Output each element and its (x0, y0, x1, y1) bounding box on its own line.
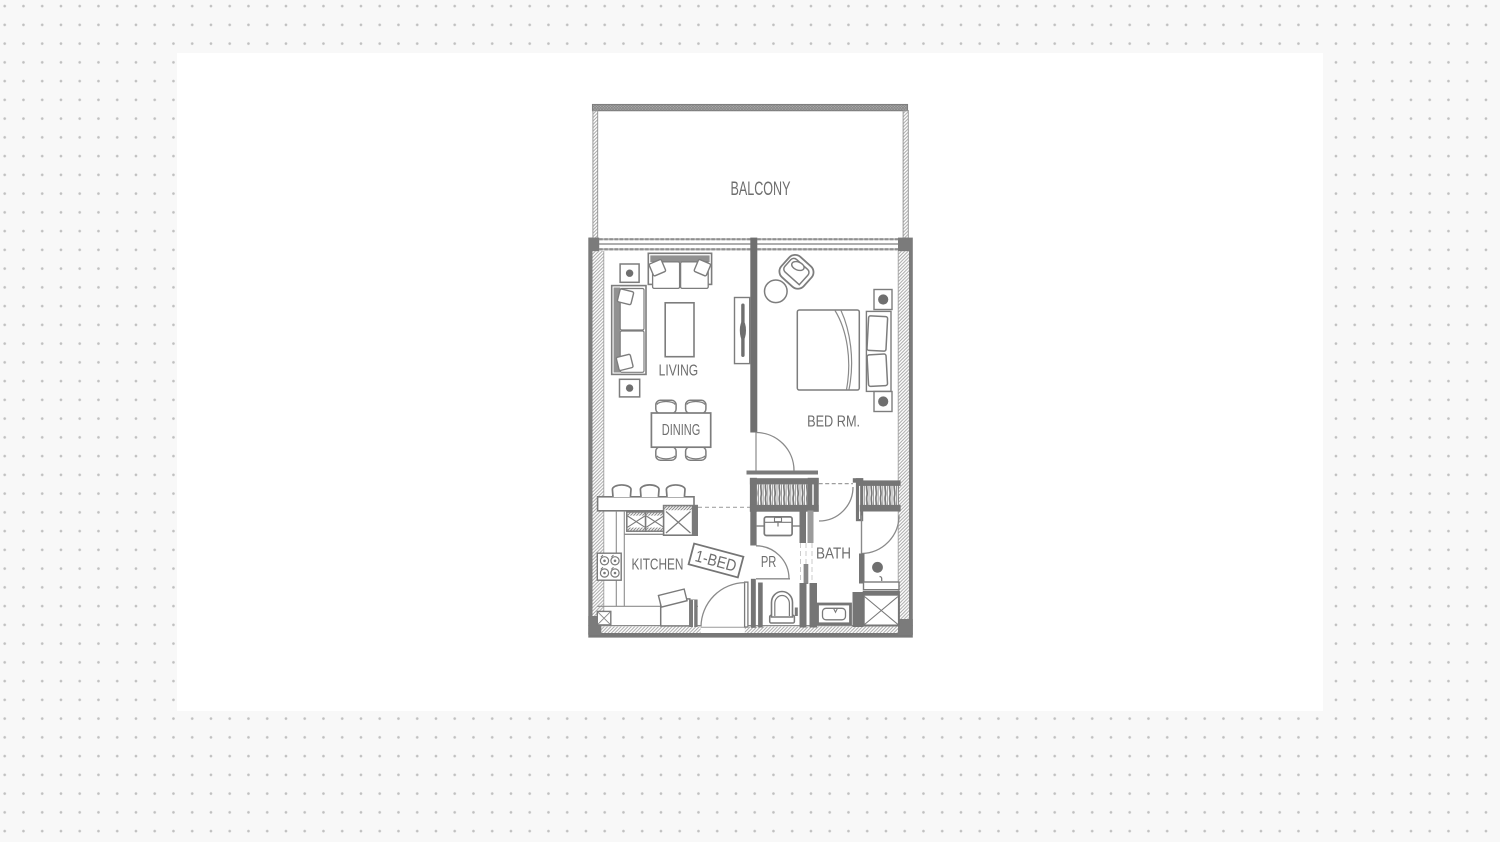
svg-text:DINING: DINING (662, 422, 701, 439)
svg-text:BED RM.: BED RM. (807, 414, 860, 431)
svg-text:BALCONY: BALCONY (731, 179, 791, 200)
svg-text:LIVING: LIVING (659, 363, 699, 380)
svg-text:KITCHEN: KITCHEN (632, 557, 684, 574)
svg-text:PR: PR (761, 554, 777, 571)
svg-text:BATH: BATH (816, 545, 851, 562)
